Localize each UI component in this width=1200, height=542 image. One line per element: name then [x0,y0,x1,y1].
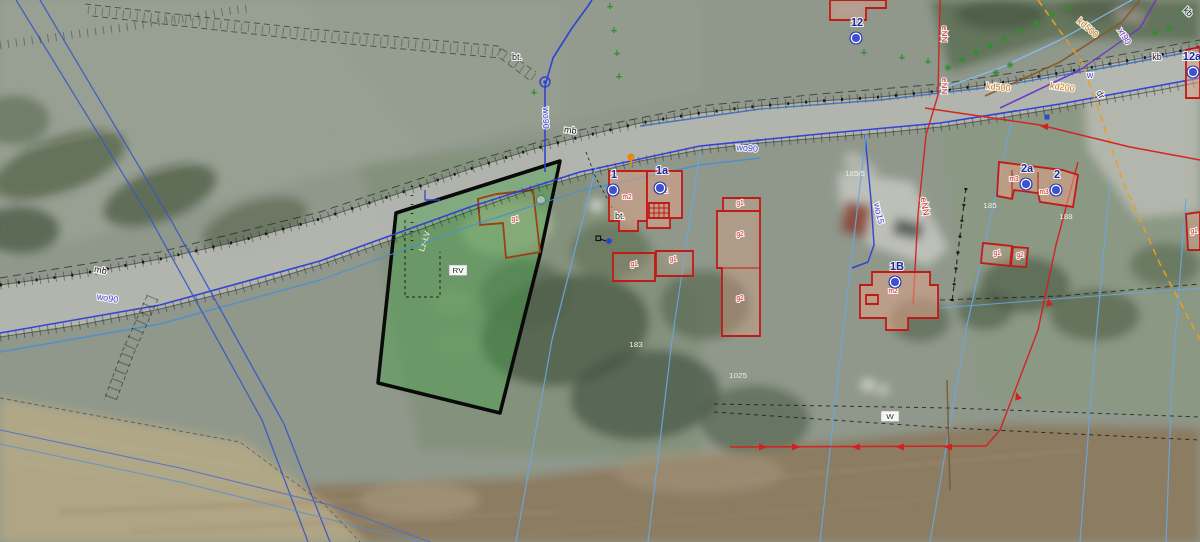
building-code-label: g2 [736,230,744,238]
conifer-tree-icon: ✳ [992,68,1000,78]
tree-plus-icon: + [531,86,537,98]
map-label: 188 [1059,212,1073,221]
tree-plus-icon: + [607,0,613,12]
address-point-icon [609,186,617,194]
conifer-tree-icon: ✳ [944,63,952,73]
address-point-icon [891,278,899,286]
map-label: bt. [512,52,522,62]
building-code-label: g1 [630,260,638,268]
conifer-tree-icon: ✳ [986,41,994,51]
map-label: 185 [983,201,997,210]
address-number-label: 1B [890,260,904,272]
map-label: kb [1152,52,1162,62]
building-code-label: g1 [993,249,1001,257]
address-number-label: 1 [611,168,617,180]
address-point-icon [1052,186,1060,194]
terrain-patch [590,199,603,212]
tree-plus-icon: + [616,70,622,82]
building-code-label: g2 [1016,251,1024,259]
address-point-icon [1022,180,1030,188]
conifer-tree-icon: ✳ [1048,10,1056,20]
map-label: w [1086,70,1094,80]
conifer-tree-icon: ✳ [1165,24,1173,34]
terrain-patch [957,290,1013,330]
terrain-patch [862,380,874,390]
map-label: eNN [940,78,949,94]
building-code-label: g1 [511,215,519,223]
conifer-tree-icon: ✳ [958,55,966,65]
map-label: RV [453,266,465,275]
map-label: W [886,412,894,421]
terrain-patch [615,450,785,494]
map-viewport[interactable]: ✳✳✳✳✳✳✳✳✳✳✳✳✳✳++++++++ mbmbwo90wo90wo90w… [0,0,1200,542]
tree-plus-icon: + [861,46,867,58]
tree-plus-icon: + [899,51,905,63]
tree-plus-icon: + [614,47,620,59]
map-label: 1025 [729,371,747,380]
building-code-label: g1 [1190,227,1198,235]
address-point-icon [656,184,664,192]
map-label: 185/5 [845,169,866,178]
map-label: 183 [629,340,643,349]
hydrant-icon [628,154,635,161]
building-code-label: g2 [736,294,744,302]
address-number-label: 1a [656,164,669,176]
water-point-icon [1045,115,1050,120]
address-number-label: 12a [1183,50,1200,62]
address-number-label: 12 [851,16,863,28]
terrain-patch [1050,289,1140,341]
water-valve-icon [543,80,547,84]
building-code-label: g1 [736,199,744,207]
tree-plus-icon: + [611,24,617,36]
conifer-tree-icon: ✳ [1016,26,1024,36]
conifer-tree-icon: ✳ [1064,3,1072,13]
building-1B-inner [866,295,878,304]
map-label: wo90 [541,106,551,129]
address-number-label: 2 [1054,168,1060,180]
address-point-icon [1189,68,1197,76]
address-number-label: 2a [1021,162,1034,174]
conifer-tree-icon: ✳ [1032,18,1040,28]
conifer-tree-icon: ✳ [1151,28,1159,38]
building-code-label: g1 [669,255,677,263]
conifer-tree-icon: ✳ [1000,34,1008,44]
shed-1 [613,253,655,281]
building-code-label: m3 [1009,175,1018,182]
valve-dot-icon [606,238,612,244]
conifer-tree-icon: ✳ [1006,60,1014,70]
map-label: bt. [615,211,625,221]
map-label: mb [564,124,578,136]
building-code-label: m3 [1039,188,1048,195]
tree-plus-icon: + [925,55,931,67]
cadastral-map: ✳✳✳✳✳✳✳✳✳✳✳✳✳✳++++++++ mbmbwo90wo90wo90w… [0,0,1200,542]
map-label: wo90 [735,142,758,154]
map-label: eNN [940,26,949,42]
building-code-label: m2 [622,193,631,200]
terrain-patch [878,385,888,394]
address-point-icon [852,34,860,42]
hydrant-icon [630,160,632,166]
conifer-tree-icon: ✳ [972,48,980,58]
